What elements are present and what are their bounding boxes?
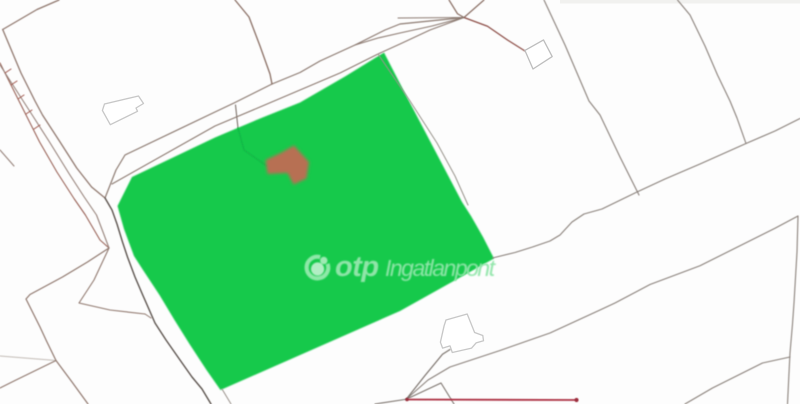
svg-text:otp: otp: [335, 251, 379, 283]
svg-text:Ingatlanpont: Ingatlanpont: [385, 255, 497, 281]
